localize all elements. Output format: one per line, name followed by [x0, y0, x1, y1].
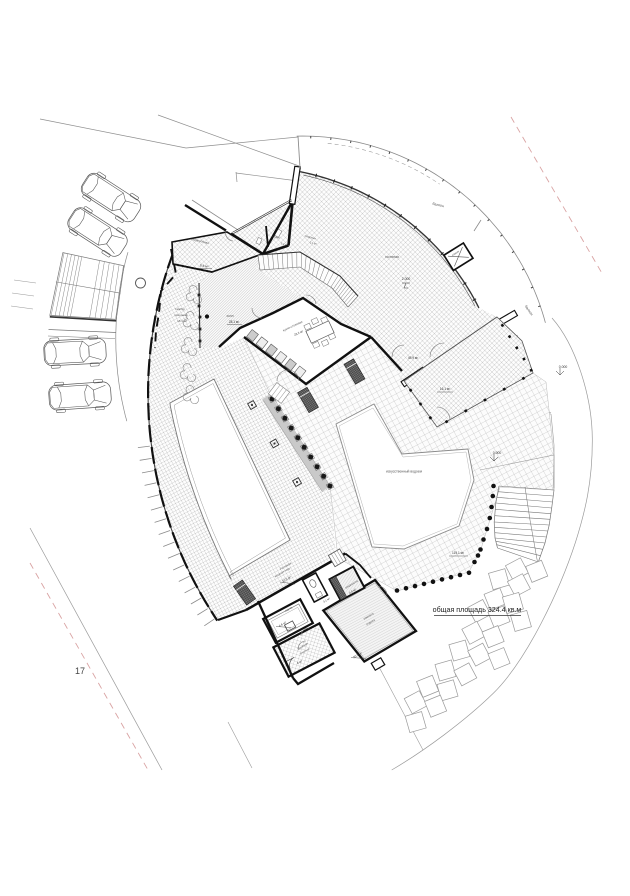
svg-text:17: 17 [75, 666, 85, 676]
svg-text:16.1 м²: 16.1 м² [177, 319, 187, 323]
svg-text:16.1 м²: 16.1 м² [440, 387, 450, 391]
svg-text:искусственный водоем: искусственный водоем [386, 470, 423, 474]
svg-text:тамбур: тамбур [175, 307, 185, 311]
svg-text:холл: холл [227, 314, 234, 318]
svg-text:2.000: 2.000 [402, 277, 411, 281]
svg-text:прихожая: прихожая [174, 313, 188, 317]
svg-text:28.1 м²: 28.1 м² [229, 320, 239, 324]
svg-text:гостиная: гостиная [385, 255, 399, 259]
svg-text:общая площадь 324.4 кв.м: общая площадь 324.4 кв.м [433, 606, 522, 614]
svg-text:119.1 м²: 119.1 м² [452, 551, 464, 555]
svg-text:49.9 м²: 49.9 м² [408, 356, 418, 360]
